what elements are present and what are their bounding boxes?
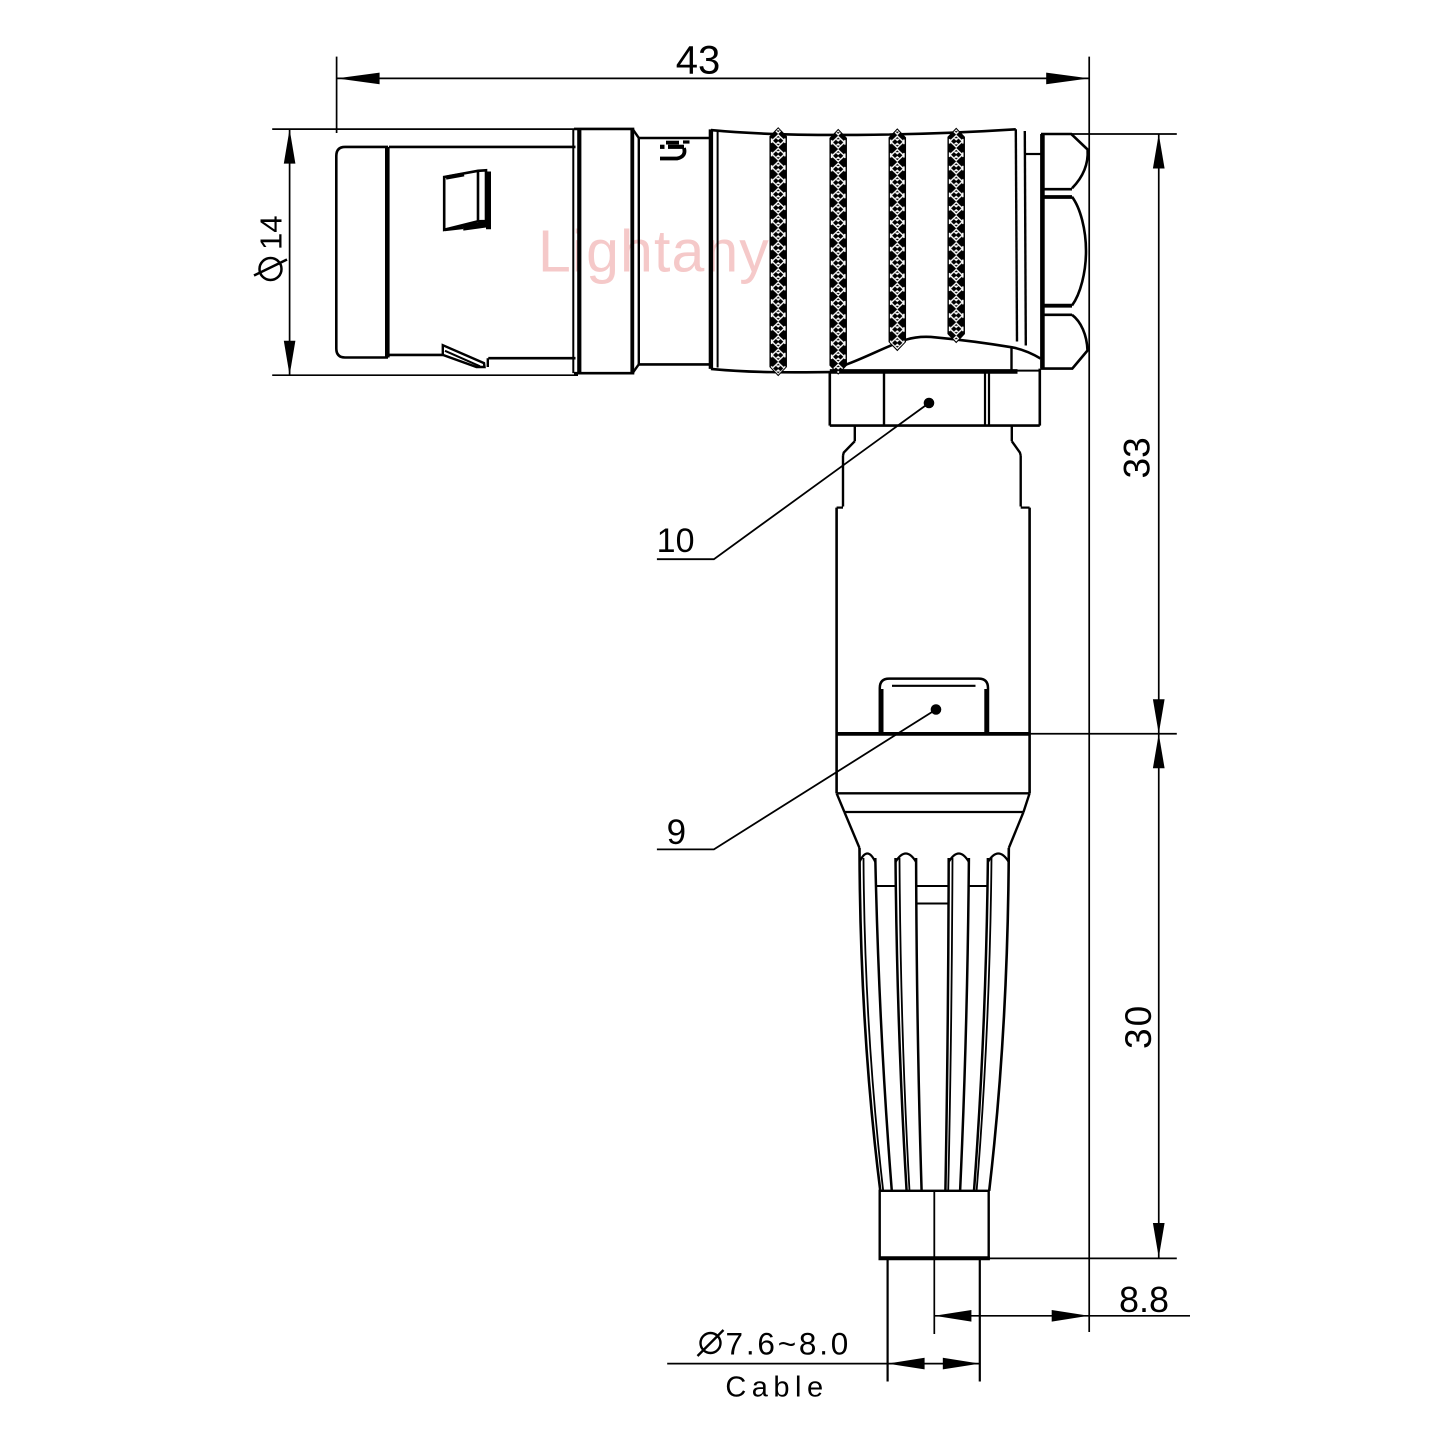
svg-text:Cable: Cable xyxy=(725,1372,828,1404)
svg-text:9: 9 xyxy=(667,813,686,852)
svg-text:33: 33 xyxy=(1117,437,1158,478)
svg-text:30: 30 xyxy=(1118,1004,1159,1049)
svg-text:43: 43 xyxy=(676,39,721,83)
svg-text:7.6~8.0: 7.6~8.0 xyxy=(726,1326,852,1362)
svg-text:8.8: 8.8 xyxy=(1119,1279,1169,1320)
svg-text:10: 10 xyxy=(657,522,695,560)
svg-text:14: 14 xyxy=(254,216,289,250)
